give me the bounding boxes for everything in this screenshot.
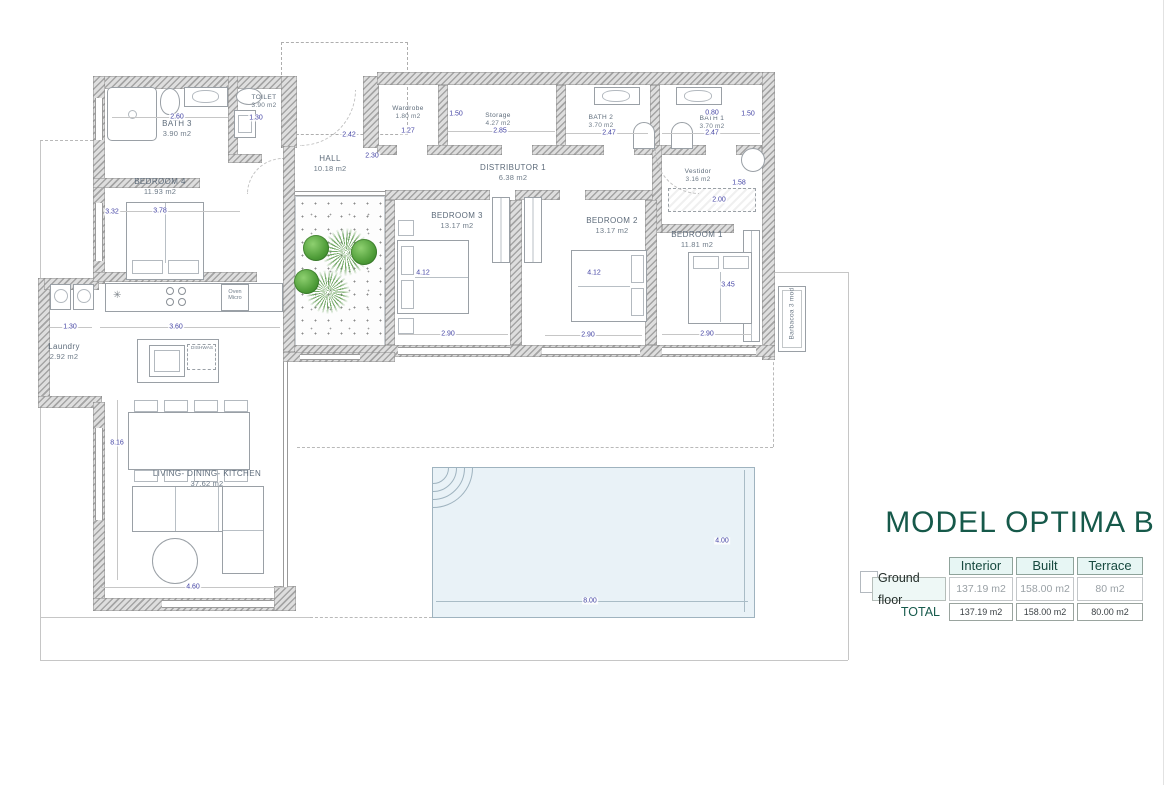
terrace-boundary-dashed-v: [773, 357, 774, 447]
pillow-icon: [631, 288, 644, 316]
dim-pool-w: 8.00: [582, 598, 598, 605]
wall: [363, 76, 379, 148]
dim-bed1-w: 2.90: [699, 331, 715, 338]
pillow-icon: [401, 246, 414, 275]
dim-bed2-w: 2.90: [580, 332, 596, 339]
chair: [134, 400, 158, 412]
terrace-line: [40, 617, 310, 618]
sink-basin-icon: [684, 90, 712, 102]
sink-basin-icon: [192, 90, 219, 103]
cell-built: 158.00 m2: [1016, 577, 1074, 601]
door-leaf-icon: [633, 122, 655, 149]
window: [95, 98, 103, 140]
wall: [510, 200, 522, 345]
hob-burner-icon: [166, 287, 174, 295]
dim-bed4-w: 3.78: [152, 208, 168, 215]
hob-burner-icon: [178, 287, 186, 295]
kitchen-counter: [105, 283, 283, 312]
dim-hall-w: 2.42: [341, 132, 357, 139]
cell-built: 158.00 m2: [1016, 603, 1074, 621]
page-title: MODEL OPTIMA B: [872, 506, 1168, 540]
dim-hall-h: 2.30: [364, 153, 380, 160]
sheet-edge: [1163, 0, 1164, 785]
room-area: 1.80 m2: [392, 113, 424, 121]
door-arc: [247, 158, 283, 194]
room-label-bedroom2: BEDROOM 2 13.17 m2: [586, 216, 638, 236]
dim-bath1-w: 2.47: [704, 130, 720, 137]
plot-boundary-top-right: [775, 272, 848, 273]
dim-bath2-w: 2.47: [601, 130, 617, 137]
room-area: 13.17 m2: [431, 221, 483, 231]
room-label-bedroom1: BEDROOM 1 11.81 m2: [671, 230, 723, 250]
window: [162, 600, 274, 608]
room-name: Wardrobe: [392, 105, 424, 113]
closet: [492, 197, 510, 263]
dining-table: [128, 412, 250, 470]
extractor-icon: ✳: [113, 290, 121, 301]
table-row-ground-floor: Ground floor 137.19 m2 158.00 m2 80 m2: [872, 577, 1168, 601]
pillow-icon: [631, 255, 644, 283]
col-header-interior: Interior: [949, 557, 1013, 575]
room-area: 13.17 m2: [586, 226, 638, 236]
hob-burner-icon: [166, 298, 174, 306]
room-label-toilet: TOILET 3.90 m2: [251, 94, 276, 110]
closet: [524, 197, 542, 263]
wall: [532, 145, 604, 155]
room-area: 10.18 m2: [314, 164, 347, 174]
cell-terrace: 80.00 m2: [1077, 603, 1143, 621]
pillow-icon: [401, 280, 414, 309]
pool-steps-arc: [432, 467, 473, 508]
room-label-vestidor: Vestidor 3.16 m2: [685, 168, 712, 184]
dim-bed3-h: 4.12: [415, 270, 431, 277]
micro-label: Micro: [223, 295, 247, 301]
barbecue-box: Barbacoa 3 mod: [778, 286, 806, 352]
pillow-icon: [168, 260, 199, 274]
sofa-line: [175, 487, 176, 531]
pillow-icon: [693, 256, 719, 269]
vestidor-table-icon: [741, 148, 765, 172]
window: [542, 347, 640, 355]
nightstand: [398, 220, 414, 236]
room-area: 11.93 m2: [134, 187, 186, 197]
dim-storage-w: 2.85: [492, 128, 508, 135]
dishwasher-label: DISHWAS: [188, 346, 216, 352]
wall: [377, 72, 775, 85]
pillow-icon: [132, 260, 163, 274]
bed-line: [415, 277, 468, 278]
row-label: Ground floor: [872, 577, 946, 601]
dim-line: [117, 400, 118, 580]
swimming-pool: [432, 467, 755, 618]
room-name: Vestidor: [685, 168, 712, 176]
bush-plant-icon: [303, 235, 329, 261]
wall: [228, 154, 262, 163]
floor-plan: ✳ Oven Micro DISHWAS Barbacoa 3 mod: [0, 0, 1170, 785]
room-name: BEDROOM 4: [134, 177, 186, 187]
room-name: LIVING- DINING- KITCHEN: [153, 469, 261, 479]
pillow-icon: [723, 256, 749, 269]
room-area: 11.81 m2: [671, 240, 723, 250]
room-name: HALL: [314, 154, 347, 164]
dim-bath1-top: 0.80: [704, 110, 720, 117]
dim-bed3-w: 2.90: [440, 331, 456, 338]
cell-interior: 137.19 m2: [949, 577, 1013, 601]
room-label-wardrobe: Wardrobe 1.80 m2: [392, 105, 424, 121]
wall: [427, 145, 502, 155]
plot-boundary-dashed: [40, 140, 93, 141]
sofa-line: [218, 487, 219, 531]
sofa-line: [223, 530, 263, 531]
dim-bed4-h: 3.32: [104, 209, 120, 216]
room-name: TOILET: [251, 94, 276, 102]
room-name: DISTRIBUTOR 1: [480, 163, 546, 173]
dim-bath3-w: 2.60: [169, 114, 185, 121]
room-name: BATH 2: [589, 114, 614, 122]
wall: [585, 190, 658, 200]
dim-wardrobe-w: 1.27: [400, 128, 416, 135]
window: [95, 203, 103, 261]
room-label-hall: HALL 10.18 m2: [314, 154, 347, 174]
toilet-bowl-icon: [160, 88, 180, 115]
room-name: BATH 3: [162, 119, 192, 129]
cell-interior: 137.19 m2: [949, 603, 1013, 621]
chair: [224, 400, 248, 412]
dim-bath1-h: 1.50: [740, 111, 756, 118]
dim-vestidor-h: 1.58: [731, 180, 747, 187]
dim-line: [118, 211, 240, 212]
room-area: 37.62 m2: [153, 479, 261, 489]
wall: [283, 146, 295, 352]
window: [95, 428, 103, 520]
room-area: 3.90 m2: [251, 102, 276, 110]
dim-bed2-h: 4.12: [586, 270, 602, 277]
table-row-total: TOTAL 137.19 m2 158.00 m2 80.00 m2: [872, 603, 1168, 621]
room-label-storage: Storage 4.27 m2: [485, 112, 511, 128]
dim-living-h: 8.16: [109, 440, 125, 447]
room-area: 3.90 m2: [162, 129, 192, 139]
dim-laundry-w: 1.30: [62, 324, 78, 331]
dim-bed1-h: 3.45: [720, 282, 736, 289]
window: [398, 347, 510, 355]
cell-terrace: 80 m2: [1077, 577, 1143, 601]
col-header-terrace: Terrace: [1077, 557, 1143, 575]
dim-living-w: 4.60: [185, 584, 201, 591]
glass-wall: [295, 191, 385, 196]
room-label-laundry: Laundry 2.92 m2: [48, 342, 80, 362]
room-area: 6.38 m2: [480, 173, 546, 183]
wall: [274, 586, 296, 611]
terrace-boundary-dashed-h: [297, 447, 773, 448]
wall: [385, 200, 395, 345]
barbecue-label: Barbacoa 3 mod: [789, 281, 796, 347]
wall: [377, 145, 397, 155]
dim-vestidor-w: 2.00: [711, 197, 727, 204]
bed-line: [720, 272, 721, 322]
room-label-bath3: BATH 3 3.90 m2: [162, 119, 192, 139]
dim-wardrobe-h: 1.50: [448, 111, 464, 118]
room-name: Storage: [485, 112, 511, 120]
room-area: 3.16 m2: [685, 176, 712, 184]
chair: [194, 400, 218, 412]
glass-wall: [283, 362, 288, 588]
area-summary-table: Interior Built Terrace Ground floor 137.…: [872, 557, 1168, 623]
sink-basin-icon: [602, 90, 630, 102]
room-name: BEDROOM 3: [431, 211, 483, 221]
bed-line: [578, 286, 630, 287]
wall: [385, 190, 490, 200]
coffee-table: [152, 538, 198, 584]
washer-drum-icon: [54, 289, 68, 303]
nightstand: [398, 318, 414, 334]
room-name: BEDROOM 1: [671, 230, 723, 240]
plot-boundary-bottom: [40, 660, 848, 661]
col-header-built: Built: [1016, 557, 1074, 575]
glass-door: [300, 354, 360, 360]
dim-line: [744, 470, 745, 612]
room-name: BEDROOM 2: [586, 216, 638, 226]
dryer-drum-icon: [77, 289, 91, 303]
room-label-bath2: BATH 2 3.70 m2: [589, 114, 614, 130]
chair: [164, 400, 188, 412]
room-label-distributor: DISTRIBUTOR 1 6.38 m2: [480, 163, 546, 183]
bush-plant-icon: [294, 269, 319, 294]
terrace-line-dashed: [310, 617, 432, 618]
sink-basin-icon: [154, 350, 180, 372]
dim-line: [100, 327, 280, 328]
room-label-bedroom4: BEDROOM 4 11.93 m2: [134, 177, 186, 197]
bush-plant-icon: [351, 239, 377, 265]
window: [662, 347, 756, 355]
hob-burner-icon: [178, 298, 186, 306]
wall: [762, 72, 775, 360]
room-label-bedroom3: BEDROOM 3 13.17 m2: [431, 211, 483, 231]
wall: [281, 76, 297, 148]
door-leaf-icon: [671, 122, 693, 149]
dim-pool-h: 4.00: [714, 538, 730, 545]
room-label-living: LIVING- DINING- KITCHEN 37.62 m2: [153, 469, 261, 489]
plot-boundary-right: [848, 272, 849, 660]
room-name: Laundry: [48, 342, 80, 352]
dim-kitchen-w: 3.60: [168, 324, 184, 331]
dim-toilet-w: 1.30: [248, 115, 264, 122]
room-area: 2.92 m2: [48, 352, 80, 362]
row-label: TOTAL: [872, 603, 946, 621]
